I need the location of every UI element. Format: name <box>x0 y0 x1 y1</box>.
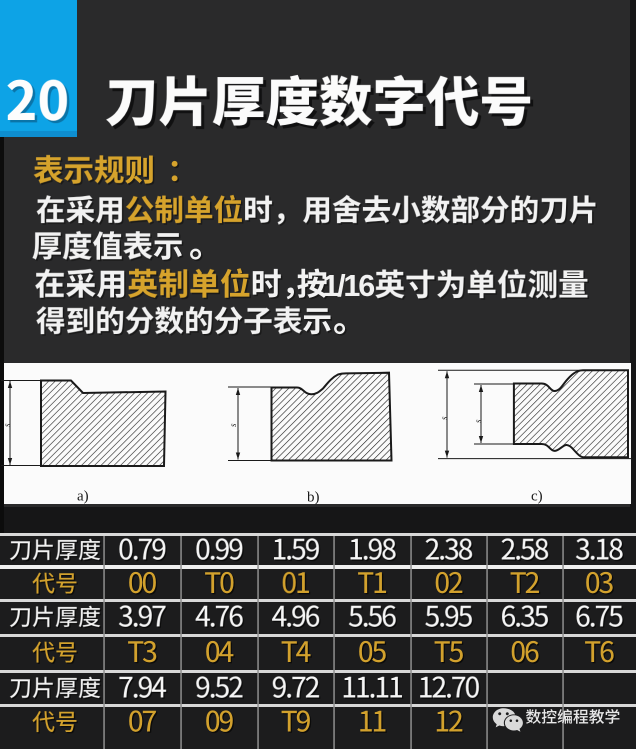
svg-text:1/16: 1/16 <box>322 269 374 303</box>
svg-text:s: s <box>439 416 449 420</box>
svg-text:b): b) <box>307 490 320 506</box>
svg-text:s: s <box>228 423 238 427</box>
svg-text:s: s <box>473 419 483 423</box>
svg-text:s: s <box>2 423 12 427</box>
svg-text:a): a) <box>77 489 89 505</box>
svg-text:c): c) <box>531 489 543 505</box>
